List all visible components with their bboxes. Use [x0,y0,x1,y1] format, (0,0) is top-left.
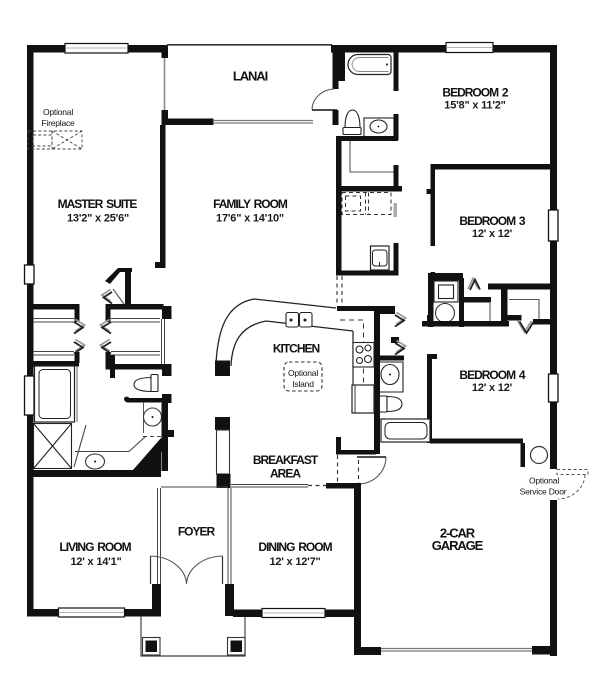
svg-text:Optional: Optional [529,476,559,486]
svg-text:12' x 12'7": 12' x 12'7" [269,556,320,568]
svg-text:BEDROOM 2: BEDROOM 2 [442,86,509,100]
svg-text:15'8" x 11'2": 15'8" x 11'2" [444,100,505,112]
svg-text:GARAGE: GARAGE [432,538,484,553]
svg-text:12' x 12': 12' x 12' [472,228,513,240]
svg-text:Service Door: Service Door [520,487,567,497]
svg-text:BREAKFAST: BREAKFAST [253,453,319,467]
svg-text:LIVING ROOM: LIVING ROOM [59,540,131,554]
svg-text:12' x 12': 12' x 12' [472,382,513,394]
svg-text:Fireplace: Fireplace [41,118,75,128]
svg-text:Island: Island [292,379,314,389]
svg-text:LANAI: LANAI [233,69,268,84]
svg-text:12' x 14'1": 12' x 14'1" [70,556,121,568]
svg-text:17'6" x 14'10": 17'6" x 14'10" [216,213,284,225]
svg-text:FAMILY ROOM: FAMILY ROOM [213,197,288,211]
svg-text:Optional: Optional [43,107,73,117]
svg-text:KITCHEN: KITCHEN [273,342,320,356]
svg-text:FOYER: FOYER [178,525,216,539]
svg-text:DINING ROOM: DINING ROOM [258,540,332,554]
svg-text:BEDROOM 3: BEDROOM 3 [459,214,526,228]
svg-text:13'2" x 25'6": 13'2" x 25'6" [67,213,129,225]
svg-text:AREA: AREA [270,467,301,481]
svg-text:Optional: Optional [288,368,318,378]
svg-text:MASTER SUITE: MASTER SUITE [58,197,138,211]
svg-text:BEDROOM 4: BEDROOM 4 [459,368,526,382]
